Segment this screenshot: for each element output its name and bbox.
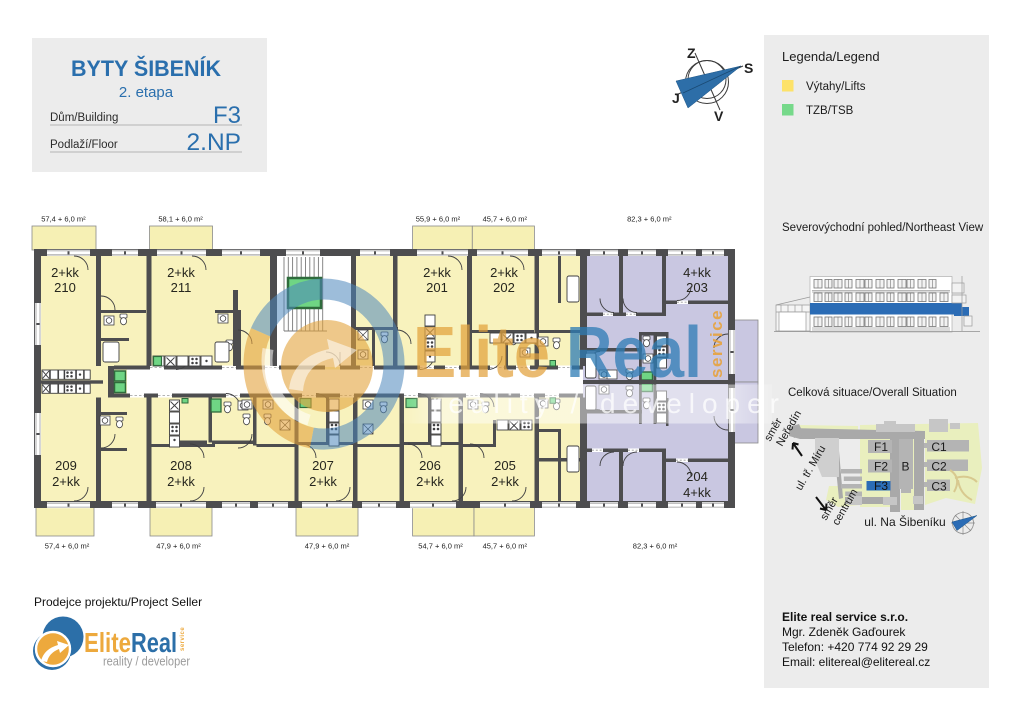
svg-text:Elite: Elite (413, 313, 550, 393)
svg-text:82,3 + 6,0 m²: 82,3 + 6,0 m² (627, 215, 672, 224)
svg-text:2+kk: 2+kk (491, 474, 519, 489)
svg-text:F3: F3 (874, 479, 888, 493)
svg-text:TZB/TSB: TZB/TSB (806, 105, 854, 117)
svg-text:204: 204 (686, 469, 708, 484)
svg-text:Prodejce projektu/Project Sell: Prodejce projektu/Project Seller (34, 595, 202, 609)
svg-text:207: 207 (312, 458, 334, 473)
svg-text:208: 208 (170, 458, 192, 473)
svg-text:2+kk: 2+kk (309, 474, 337, 489)
svg-text:2. etapa: 2. etapa (119, 84, 174, 101)
svg-text:Real: Real (566, 313, 702, 393)
svg-text:203: 203 (686, 280, 708, 295)
svg-text:B: B (901, 460, 909, 474)
svg-text:2+kk: 2+kk (490, 265, 518, 280)
svg-text:205: 205 (494, 458, 516, 473)
svg-text:2+kk: 2+kk (51, 265, 79, 280)
svg-text:service: service (707, 309, 726, 378)
svg-text:reality / developer: reality / developer (432, 388, 786, 419)
svg-text:Telefon: +420 774 92 29 29: Telefon: +420 774 92 29 29 (782, 640, 928, 654)
svg-text:2+kk: 2+kk (52, 474, 80, 489)
svg-text:C2: C2 (931, 460, 947, 474)
svg-text:4+kk: 4+kk (683, 485, 711, 500)
svg-text:210: 210 (54, 280, 76, 295)
svg-text:ul. Na Šibeníku: ul. Na Šibeníku (864, 514, 945, 529)
svg-text:J: J (672, 90, 680, 106)
svg-text:Mgr. Zdeněk Gaďourek: Mgr. Zdeněk Gaďourek (782, 625, 906, 639)
svg-text:57,4 + 6,0 m²: 57,4 + 6,0 m² (45, 542, 90, 551)
svg-text:Výtahy/Lifts: Výtahy/Lifts (806, 81, 866, 93)
svg-text:service: service (180, 627, 186, 651)
svg-text:Elite: Elite (84, 627, 131, 658)
svg-text:47,9 + 6,0 m²: 47,9 + 6,0 m² (156, 542, 201, 551)
svg-text:Z: Z (687, 45, 696, 61)
svg-text:Dům/Building: Dům/Building (50, 112, 118, 124)
svg-text:2+kk: 2+kk (167, 474, 195, 489)
svg-text:2+kk: 2+kk (167, 265, 195, 280)
svg-text:82,3 + 6,0 m²: 82,3 + 6,0 m² (633, 542, 678, 551)
svg-text:202: 202 (493, 280, 515, 295)
svg-text:V: V (714, 108, 724, 124)
svg-text:2+kk: 2+kk (423, 265, 451, 280)
svg-text:Severovýchodní pohled/Northeas: Severovýchodní pohled/Northeast View (782, 222, 984, 234)
svg-text:206: 206 (419, 458, 441, 473)
svg-text:C3: C3 (931, 480, 947, 494)
svg-text:209: 209 (55, 458, 77, 473)
svg-text:F2: F2 (874, 460, 888, 474)
svg-text:reality / developer: reality / developer (103, 655, 190, 669)
svg-text:C1: C1 (931, 440, 947, 454)
svg-text:45,7 + 6,0 m²: 45,7 + 6,0 m² (483, 215, 528, 224)
svg-text:201: 201 (426, 280, 448, 295)
svg-text:58,1 + 6,0 m²: 58,1 + 6,0 m² (158, 215, 203, 224)
svg-text:Email: elitereal@elitereal.cz: Email: elitereal@elitereal.cz (782, 655, 930, 669)
svg-text:211: 211 (171, 280, 192, 295)
svg-text:54,7 + 6,0 m²: 54,7 + 6,0 m² (418, 542, 463, 551)
svg-text:57,4 + 6,0 m²: 57,4 + 6,0 m² (41, 215, 86, 224)
svg-text:2+kk: 2+kk (416, 474, 444, 489)
svg-text:Celková situace/Overall Situat: Celková situace/Overall Situation (788, 387, 957, 399)
svg-text:45,7 + 6,0 m²: 45,7 + 6,0 m² (483, 542, 528, 551)
svg-text:Legenda/Legend: Legenda/Legend (782, 49, 880, 64)
svg-text:55,9 + 6,0 m²: 55,9 + 6,0 m² (416, 215, 461, 224)
svg-text:4+kk: 4+kk (683, 265, 711, 280)
svg-text:BYTY ŠIBENÍK: BYTY ŠIBENÍK (71, 56, 221, 81)
svg-text:S: S (744, 60, 753, 76)
svg-text:Podlaží/Floor: Podlaží/Floor (50, 139, 118, 151)
svg-text:47,9 + 6,0 m²: 47,9 + 6,0 m² (305, 542, 350, 551)
svg-text:Real: Real (131, 627, 177, 658)
svg-text:F1: F1 (874, 440, 888, 454)
svg-text:Elite real service s.r.o.: Elite real service s.r.o. (782, 610, 908, 624)
